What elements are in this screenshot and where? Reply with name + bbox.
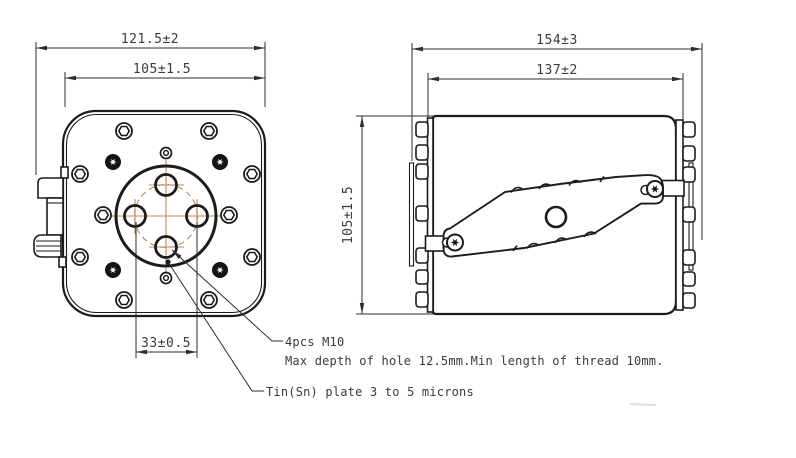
small-screw [161,273,172,284]
drawing-svg: 121.5±2 105±1.5 33±0.5 4pcs M10 Max dept… [0,0,796,458]
right-ribs [683,122,695,308]
hex-screw [116,292,132,308]
torx-screw [106,155,121,170]
note-holes-label: 4pcs M10 [285,335,344,349]
small-screw [161,148,172,159]
note-plating: Tin(Sn) plate 3 to 5 microns [266,385,474,399]
dim-overall-width: 121.5±2 [36,32,265,175]
strap-screw-right [647,181,663,197]
hex-screw [201,292,217,308]
hex-screw [244,249,260,265]
hex-screw [221,207,237,223]
engineering-drawing: 121.5±2 105±1.5 33±0.5 4pcs M10 Max dept… [0,0,796,458]
dim-text-flange-width: 105±1.5 [133,62,191,77]
dim-text-overall-length: 154±3 [536,33,578,48]
torx-screw [213,155,228,170]
left-bracket-bar [410,163,414,266]
dim-text-overall-width: 121.5±2 [121,32,179,47]
side-view: 154±3 137±2 105±1.5 [341,33,702,405]
note-holes-detail: Max depth of hole 12.5mm.Min length of t… [285,354,664,368]
hex-screw [244,166,260,182]
hex-screw [201,123,217,139]
dim-flange-width: 105±1.5 [65,62,265,107]
hex-screw [72,166,88,182]
hex-screw [116,123,132,139]
torx-screw [213,263,228,278]
strap-screw-left [447,235,463,251]
torx-screw [106,263,121,278]
dim-text-hole-spacing: 33±0.5 [141,336,191,351]
faint-artifact [630,404,656,405]
dim-text-height: 105±1.5 [341,186,356,244]
left-ribs [416,122,428,307]
hex-screw [72,249,88,265]
dim-text-body-length: 137±2 [536,63,578,78]
hex-screw [95,207,111,223]
dim-body-length: 137±2 [428,63,683,119]
right-end-plate [676,120,683,310]
